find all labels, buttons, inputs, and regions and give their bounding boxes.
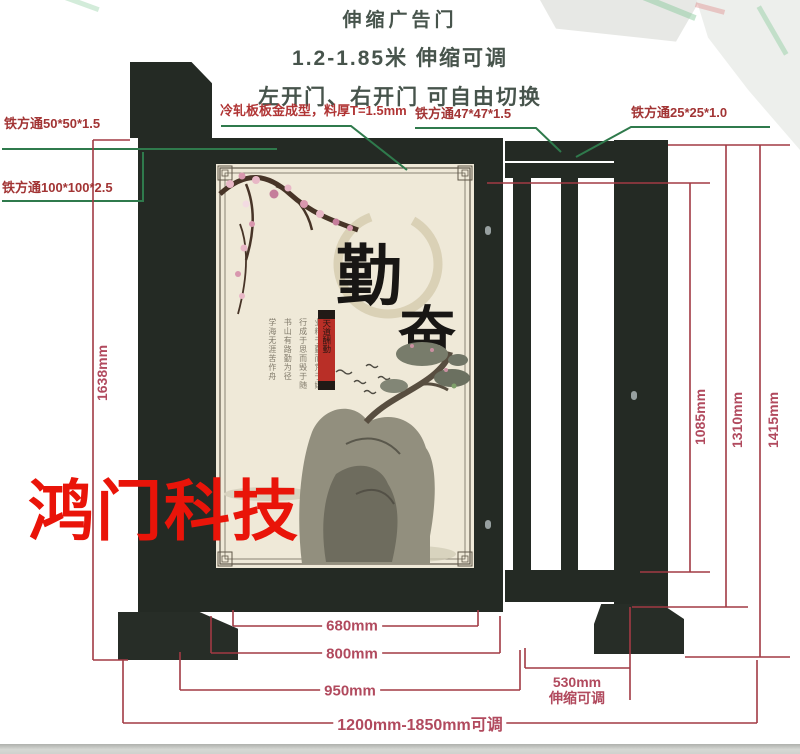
- dimension-lines: [93, 140, 790, 723]
- callout-tube47: 铁方通47*47*1.5: [415, 103, 511, 122]
- dim-telescopic-value: 530mm: [549, 674, 605, 690]
- dim-height-frame: 1310mm: [729, 390, 745, 450]
- dim-width-panel: 680mm: [322, 618, 382, 635]
- dim-width-door-post: 950mm: [320, 683, 380, 700]
- watermark-text: 鸿门科技: [28, 458, 300, 554]
- callout-cold-plate: 冷轧板板金成型，料厚T=1.5mm: [220, 100, 407, 119]
- dim-height-left: 1638mm: [94, 343, 110, 403]
- product-title: 伸缩广告门: [0, 5, 800, 32]
- product-range: 1.2-1.85米 伸缩可调: [0, 42, 800, 72]
- dim-telescopic-note: 伸缩可调: [549, 690, 605, 706]
- callout-tube100: 铁方通100*100*2.5: [2, 177, 113, 196]
- dim-height-inner: 1085mm: [692, 387, 708, 447]
- advertising-gate-diagram: 伸缩广告门 1.2-1.85米 伸缩可调 左开门、右开门 可自由切换: [0, 0, 800, 754]
- leader-lines: [2, 126, 770, 201]
- dim-width-total: 1200mm-1850mm可调: [333, 711, 506, 735]
- dim-height-total: 1415mm: [765, 390, 781, 450]
- dim-width-door: 800mm: [322, 646, 382, 663]
- dim-telescopic: 530mm 伸缩可调: [549, 674, 605, 706]
- callout-tube50: 铁方通50*50*1.5: [4, 113, 100, 132]
- callout-tube25: 铁方通25*25*1.0: [631, 102, 727, 121]
- header-text: 伸缩广告门 1.2-1.85米 伸缩可调 左开门、右开门 可自由切换: [0, 5, 800, 111]
